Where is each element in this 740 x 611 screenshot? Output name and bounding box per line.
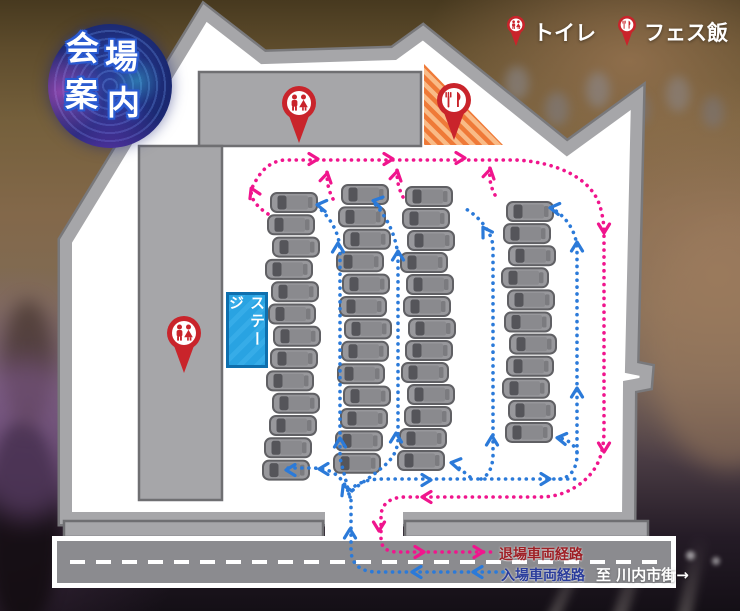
food-pin-icon (614, 12, 640, 52)
toilet-pin-icon (503, 12, 529, 52)
car (338, 364, 384, 383)
car (269, 305, 315, 324)
car (508, 290, 554, 309)
car (405, 407, 451, 426)
exit-route-label: 退場車両経路 (499, 544, 583, 564)
venue-guide-poster: 会 場 案 内 トイレ フェス飯 ステージ 退場車両経路 入場車両経路 至 川内… (0, 0, 740, 611)
car (409, 319, 455, 338)
car (273, 394, 319, 413)
car (342, 342, 388, 361)
car (510, 335, 556, 354)
car (337, 252, 383, 271)
car (398, 451, 444, 470)
car (507, 202, 553, 221)
title-badge: 会 場 案 内 (48, 24, 172, 148)
car (271, 193, 317, 212)
car (402, 363, 448, 382)
car (408, 385, 454, 404)
car (341, 409, 387, 428)
car (273, 238, 319, 257)
stage: ステージ (226, 292, 268, 368)
car (505, 313, 551, 332)
legend-toilet-label: トイレ (533, 17, 596, 47)
car (509, 246, 555, 265)
car (504, 224, 550, 243)
car (266, 260, 312, 279)
car (271, 349, 317, 368)
car (270, 416, 316, 435)
legend: トイレ フェス飯 (503, 12, 728, 52)
car (509, 401, 555, 420)
badge-char: 案 (65, 78, 98, 111)
car (334, 454, 380, 473)
car (345, 319, 391, 338)
badge-char: 会 (66, 32, 99, 65)
car (506, 423, 552, 442)
car (502, 268, 548, 287)
car (344, 230, 390, 249)
car (342, 185, 388, 204)
car (265, 438, 311, 457)
car (406, 187, 452, 206)
car (401, 253, 447, 272)
car (406, 341, 452, 360)
car (408, 231, 454, 250)
entry-route-label: 入場車両経路 (501, 565, 585, 585)
badge-char: 場 (105, 40, 138, 73)
destination-label: 至 川内市街→ (596, 564, 689, 585)
car (503, 379, 549, 398)
car (340, 297, 386, 316)
stage-label: ステージ (226, 295, 268, 365)
car (343, 275, 389, 294)
car (403, 209, 449, 228)
gate-driveway (325, 503, 403, 541)
car (400, 429, 446, 448)
car (404, 297, 450, 316)
car (274, 327, 320, 346)
south-wall-left (64, 521, 323, 537)
car (344, 387, 390, 406)
car (407, 275, 453, 294)
car (507, 357, 553, 376)
car (267, 371, 313, 390)
badge-char: 内 (107, 86, 140, 119)
car (272, 282, 318, 301)
south-wall-right (405, 521, 648, 537)
car (268, 215, 314, 234)
legend-food-label: フェス飯 (644, 17, 728, 47)
